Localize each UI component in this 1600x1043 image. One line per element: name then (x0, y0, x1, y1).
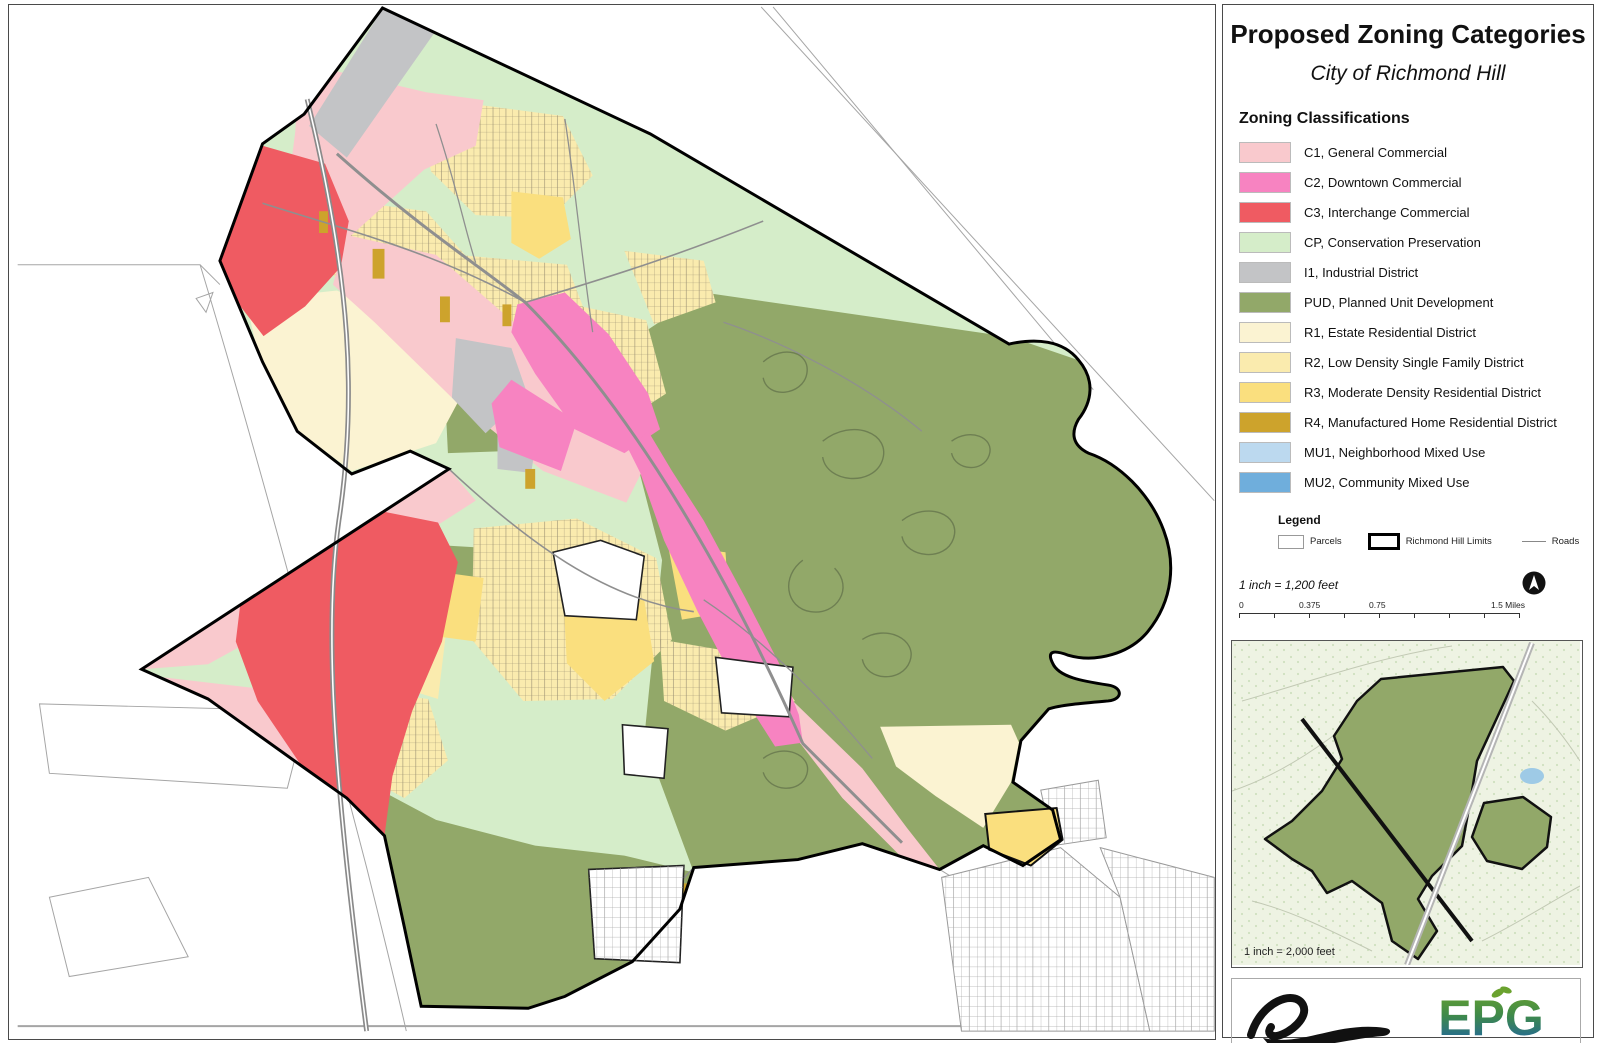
pond (1520, 768, 1544, 784)
zone-label: CP, Conservation Preservation (1304, 235, 1481, 250)
zone-color-swatch (1239, 142, 1291, 163)
zone-label: I1, Industrial District (1304, 265, 1418, 280)
city-limits-label: Richmond Hill Limits (1406, 536, 1492, 547)
zone-label: C2, Downtown Commercial (1304, 175, 1462, 190)
map-sheet: Proposed Zoning Categories City of Richm… (0, 0, 1600, 1043)
legend-item-r2: R2, Low Density Single Family District (1239, 352, 1593, 373)
zone-label: R4, Manufactured Home Residential Distri… (1304, 415, 1557, 430)
page-title: Proposed Zoning Categories (1223, 19, 1593, 50)
zone-color-swatch (1239, 412, 1291, 433)
zone-label: C1, General Commercial (1304, 145, 1447, 160)
zone-color-swatch (1239, 322, 1291, 343)
page-subtitle: City of Richmond Hill (1223, 62, 1593, 86)
logos-box: RICHMOND HILL G E O R G I A EPG (1231, 978, 1581, 1043)
roads-label: Roads (1552, 536, 1579, 547)
roads-swatch (1522, 541, 1546, 542)
legend-heading: Legend (1278, 513, 1593, 527)
legend-item-cp: CP, Conservation Preservation (1239, 232, 1593, 253)
scale-bar: 0 0.375 0.75 1.5 Miles (1239, 600, 1577, 626)
zone-color-swatch (1239, 352, 1291, 373)
zone-color-swatch (1239, 202, 1291, 223)
zone-color-swatch (1239, 232, 1291, 253)
legend-item-c1: C1, General Commercial (1239, 142, 1593, 163)
zone-label: R3, Moderate Density Residential Distric… (1304, 385, 1541, 400)
zone-label: R1, Estate Residential District (1304, 325, 1476, 340)
legend-item-pud: PUD, Planned Unit Development (1239, 292, 1593, 313)
legend-item-r1: R1, Estate Residential District (1239, 322, 1593, 343)
zone-color-swatch (1239, 292, 1291, 313)
scale-statement: 1 inch = 1,200 feet (1239, 576, 1577, 598)
parcels-swatch (1278, 535, 1304, 549)
legend-item-i1: I1, Industrial District (1239, 262, 1593, 283)
zone-label: C3, Interchange Commercial (1304, 205, 1469, 220)
legend-panel: Proposed Zoning Categories City of Richm… (1222, 4, 1594, 1038)
legend-item-mu2: MU2, Community Mixed Use (1239, 472, 1593, 493)
zone-label: MU1, Neighborhood Mixed Use (1304, 445, 1485, 460)
north-arrow-icon (1521, 570, 1547, 601)
legend-item-c3: C3, Interchange Commercial (1239, 202, 1593, 223)
scale-tick-label: 0.375 (1299, 600, 1320, 610)
scale-tick-label: 0.75 (1369, 600, 1386, 610)
zone-label: PUD, Planned Unit Development (1304, 295, 1493, 310)
main-map (8, 4, 1216, 1040)
inset-scale-text: 1 inch = 2,000 feet (1244, 946, 1335, 958)
richmond-hill-logo: RICHMOND HILL G E O R G I A (1237, 983, 1397, 1043)
richmond-hill-logo-mark (1251, 997, 1390, 1043)
legend-item-c2: C2, Downtown Commercial (1239, 172, 1593, 193)
zone-label: MU2, Community Mixed Use (1304, 475, 1469, 490)
legend-item-r3: R3, Moderate Density Residential Distric… (1239, 382, 1593, 403)
zoning-map-svg (9, 5, 1215, 1039)
zone-color-swatch (1239, 382, 1291, 403)
zone-color-swatch (1239, 472, 1291, 493)
zoning-classifications-heading: Zoning Classifications (1239, 110, 1593, 128)
map-legend: Legend Parcels Richmond Hill Limits Road… (1278, 513, 1593, 550)
zone-color-swatch (1239, 442, 1291, 463)
inset-map: 1 inch = 2,000 feet (1231, 640, 1583, 968)
city-limits-swatch (1368, 533, 1400, 550)
parcels-label: Parcels (1310, 536, 1342, 547)
epg-acronym: EPG (1438, 990, 1544, 1043)
legend-item-r4: R4, Manufactured Home Residential Distri… (1239, 412, 1593, 433)
zone-color-swatch (1239, 262, 1291, 283)
zone-color-swatch (1239, 172, 1291, 193)
legend-item-mu1: MU1, Neighborhood Mixed Use (1239, 442, 1593, 463)
zone-label: R2, Low Density Single Family District (1304, 355, 1524, 370)
scale-text: 1 inch = 1,200 feet (1239, 578, 1338, 592)
epg-logo: EPG ECOLOGICAL PLANNING GROUP (1406, 983, 1576, 1043)
scale-tick-label: 1.5 Miles (1491, 600, 1525, 610)
scale-tick-label: 0 (1239, 600, 1244, 610)
